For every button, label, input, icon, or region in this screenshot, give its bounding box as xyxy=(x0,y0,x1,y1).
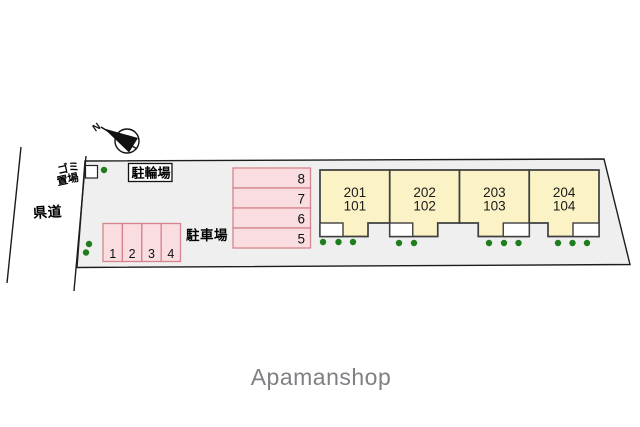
garbage-area-label: ゴミ 置場 xyxy=(53,159,83,189)
plant-dot-icon xyxy=(584,240,590,246)
stall-number: 1 xyxy=(109,247,116,261)
stall-number: 5 xyxy=(297,232,305,247)
stall-number: 4 xyxy=(167,247,174,261)
unit-porch xyxy=(573,223,599,237)
stall-number: 3 xyxy=(148,247,155,261)
unit-number-lower: 101 xyxy=(344,199,367,214)
watermark-logo-text: Apamanshop xyxy=(251,364,392,390)
stall-number: 7 xyxy=(297,192,305,207)
plant-dot-icon xyxy=(320,239,326,245)
unit-porch xyxy=(503,223,529,237)
stall-number: 2 xyxy=(129,247,136,261)
compass-north-label: N xyxy=(91,121,103,134)
unit-porch xyxy=(320,223,343,237)
plant-dot-icon xyxy=(83,249,89,255)
plant-dot-icon xyxy=(515,240,521,246)
parking-row-west: 1 2 3 4 xyxy=(103,224,181,262)
bicycle-parking-label: 駐輪場 xyxy=(132,166,171,181)
plant-dot-icon xyxy=(486,240,492,246)
unit-number-lower: 102 xyxy=(413,199,436,214)
road-west-line xyxy=(7,147,21,283)
plant-dot-icon xyxy=(501,240,507,246)
bicycle-parking: 駐輪場 xyxy=(129,164,173,182)
plant-dot-icon xyxy=(569,240,575,246)
parking-column-center: 8 7 6 5 xyxy=(233,168,311,248)
stall-number: 6 xyxy=(297,212,305,227)
unit-number-lower: 103 xyxy=(483,199,506,214)
compass-needle xyxy=(104,129,138,153)
plant-dot-icon xyxy=(335,239,341,245)
site-plan-page: 県道 N ゴミ 置場 駐輪場 1 2 3 4 駐車場 8 xyxy=(0,0,640,427)
plant-dot-icon xyxy=(86,241,92,247)
unit-porch xyxy=(390,223,413,237)
road-label: 県道 xyxy=(33,203,63,220)
plant-dot-icon xyxy=(555,240,561,246)
stall-number: 8 xyxy=(297,172,305,187)
garbage-box-icon xyxy=(86,166,98,179)
plant-dot-icon xyxy=(411,240,417,246)
plant-dot-icon xyxy=(350,239,356,245)
site-plan-drawing: 県道 N ゴミ 置場 駐輪場 1 2 3 4 駐車場 8 xyxy=(0,0,640,427)
plant-dot-icon xyxy=(101,167,107,173)
unit-number-lower: 104 xyxy=(553,199,576,214)
parking-lot-label: 駐車場 xyxy=(186,227,228,243)
plant-dot-icon xyxy=(396,240,402,246)
compass-icon: N xyxy=(91,121,139,153)
